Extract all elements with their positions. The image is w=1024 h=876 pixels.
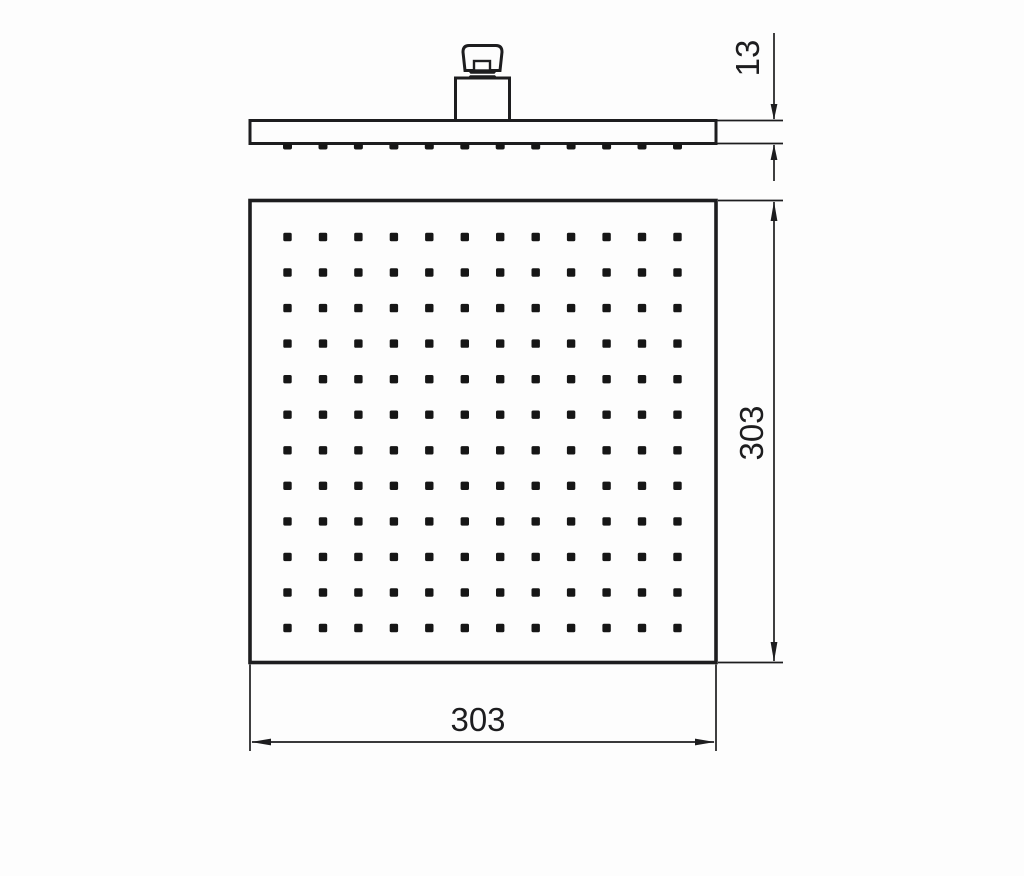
nozzle-dot xyxy=(319,233,327,241)
nozzle-dot xyxy=(461,624,469,632)
nozzle-dot xyxy=(390,411,398,419)
nozzle-dot xyxy=(283,268,291,276)
nozzle-dot xyxy=(354,446,362,454)
nozzle-dot xyxy=(602,517,610,525)
nozzle-dot xyxy=(532,375,540,383)
nozzle-dot xyxy=(354,411,362,419)
nozzle-dot xyxy=(567,588,575,596)
nozzle-dot xyxy=(354,304,362,312)
nozzle-dot xyxy=(532,482,540,490)
nozzle-dot xyxy=(319,446,327,454)
nozzle-dot xyxy=(461,339,469,347)
nozzle-dot xyxy=(496,375,504,383)
nozzle-dot xyxy=(390,624,398,632)
nozzle-dot xyxy=(425,339,433,347)
nozzle-dot xyxy=(638,233,646,241)
nozzle-dot xyxy=(532,268,540,276)
dimension-thickness: 13 xyxy=(717,33,783,181)
nozzle-dot xyxy=(532,553,540,561)
nozzle-dot xyxy=(354,482,362,490)
dimension-label-height: 303 xyxy=(733,405,770,460)
nozzle-dot xyxy=(602,375,610,383)
nozzle-dot xyxy=(390,482,398,490)
nozzle-dot xyxy=(283,517,291,525)
nozzle-dot xyxy=(283,446,291,454)
nozzle-dot xyxy=(354,233,362,241)
nozzle-dot xyxy=(496,446,504,454)
nozzle-dot xyxy=(425,482,433,490)
nozzle-dot xyxy=(496,233,504,241)
nozzle-dot xyxy=(390,304,398,312)
arrowhead-right-icon xyxy=(695,739,715,746)
nozzle-dot xyxy=(602,446,610,454)
nozzle-dot xyxy=(638,411,646,419)
nozzle-dot xyxy=(673,482,681,490)
technical-drawing-svg: 13 303 303 xyxy=(0,0,1024,876)
nozzle-dot xyxy=(567,482,575,490)
nozzle-dot xyxy=(602,411,610,419)
nozzle-dot xyxy=(638,553,646,561)
nozzle-dot xyxy=(673,268,681,276)
nozzle-dot xyxy=(283,482,291,490)
nozzle-dot xyxy=(354,624,362,632)
nozzle-dot xyxy=(638,375,646,383)
arrowhead-up-icon xyxy=(771,201,778,221)
nozzle-dot xyxy=(567,233,575,241)
nozzle-dot xyxy=(354,268,362,276)
dimension-label-thickness: 13 xyxy=(729,40,766,77)
arrowhead-down-icon xyxy=(771,642,778,662)
nozzle-dot xyxy=(673,375,681,383)
nozzle-dot xyxy=(319,304,327,312)
nozzle-dot xyxy=(638,304,646,312)
nozzle-dot xyxy=(354,553,362,561)
connector-body xyxy=(456,78,510,122)
dimension-width: 303 xyxy=(250,665,716,752)
nozzle-dot xyxy=(673,553,681,561)
nozzle-dot xyxy=(461,482,469,490)
nozzle-dot xyxy=(390,268,398,276)
nozzle-dot xyxy=(425,304,433,312)
nozzle-dot xyxy=(638,517,646,525)
nozzle-dot xyxy=(602,553,610,561)
nozzle-dot xyxy=(532,411,540,419)
nozzle-dot xyxy=(461,411,469,419)
nozzle-dot xyxy=(283,588,291,596)
connector-notch xyxy=(474,61,490,71)
nozzle-dot xyxy=(673,339,681,347)
nozzle-bump xyxy=(354,144,363,150)
nozzle-dot xyxy=(319,588,327,596)
nozzle-dot xyxy=(567,517,575,525)
nozzle-dot xyxy=(461,304,469,312)
nozzle-dot xyxy=(532,446,540,454)
nozzle-dot xyxy=(496,304,504,312)
nozzle-bump xyxy=(389,144,398,150)
nozzle-dot xyxy=(532,588,540,596)
nozzle-dot xyxy=(496,517,504,525)
nozzle-dot xyxy=(638,588,646,596)
nozzle-dot xyxy=(532,517,540,525)
nozzle-dot xyxy=(602,482,610,490)
nozzle-dot xyxy=(390,588,398,596)
nozzle-dot xyxy=(673,233,681,241)
nozzle-dot xyxy=(673,517,681,525)
nozzle-dot xyxy=(602,268,610,276)
nozzle-bump xyxy=(319,144,328,150)
nozzle-dot xyxy=(602,304,610,312)
nozzle-dot xyxy=(461,553,469,561)
nozzle-dot xyxy=(532,233,540,241)
nozzle-dot xyxy=(567,411,575,419)
nozzle-dot xyxy=(638,446,646,454)
dimension-height: 303 xyxy=(718,201,783,663)
nozzle-dot xyxy=(673,446,681,454)
nozzle-dot xyxy=(673,304,681,312)
nozzle-dot xyxy=(319,268,327,276)
nozzle-dot xyxy=(638,339,646,347)
arrowhead-left-icon xyxy=(251,739,271,746)
nozzle-bump xyxy=(673,144,682,150)
drawing-canvas: 13 303 303 xyxy=(0,0,1024,876)
nozzle-dot xyxy=(425,375,433,383)
nozzle-dot xyxy=(567,553,575,561)
nozzle-dot xyxy=(602,624,610,632)
nozzle-dot xyxy=(283,339,291,347)
nozzle-bump xyxy=(531,144,540,150)
nozzle-dot xyxy=(567,339,575,347)
nozzle-dot xyxy=(602,339,610,347)
nozzle-dot xyxy=(354,517,362,525)
plate-profile xyxy=(250,121,716,144)
nozzle-dot xyxy=(283,233,291,241)
nozzle-dot xyxy=(461,268,469,276)
nozzle-dot xyxy=(425,411,433,419)
nozzle-dot xyxy=(461,588,469,596)
nozzle-dot xyxy=(461,517,469,525)
nozzle-dot xyxy=(567,268,575,276)
nozzle-dot xyxy=(496,553,504,561)
nozzle-bump xyxy=(602,144,611,150)
nozzle-dot xyxy=(638,624,646,632)
nozzle-dot xyxy=(390,517,398,525)
nozzle-dot xyxy=(390,233,398,241)
nozzle-dot xyxy=(496,339,504,347)
nozzle-dot xyxy=(425,624,433,632)
nozzle-bump xyxy=(283,144,292,150)
nozzle-dot xyxy=(425,588,433,596)
side-view xyxy=(250,46,716,150)
nozzle-dot xyxy=(319,411,327,419)
arrowhead-down-icon xyxy=(771,104,778,120)
nozzle-dot xyxy=(354,375,362,383)
nozzle-bump xyxy=(567,144,576,150)
nozzle-dot xyxy=(567,304,575,312)
nozzle-dot xyxy=(319,375,327,383)
nozzle-dot xyxy=(461,446,469,454)
nozzle-dot xyxy=(425,268,433,276)
nozzle-dot xyxy=(532,339,540,347)
connector-collar-lower xyxy=(467,75,499,79)
nozzle-dot xyxy=(425,233,433,241)
nozzle-dot xyxy=(602,588,610,596)
nozzle-dot xyxy=(390,339,398,347)
nozzle-dot xyxy=(283,553,291,561)
nozzle-dot xyxy=(283,411,291,419)
nozzle-dot xyxy=(567,446,575,454)
nozzle-dot xyxy=(354,339,362,347)
nozzle-dot xyxy=(390,446,398,454)
nozzle-dot xyxy=(461,233,469,241)
nozzle-dot xyxy=(638,268,646,276)
nozzle-dot xyxy=(319,517,327,525)
dimension-label-width: 303 xyxy=(450,701,505,738)
nozzle-dot xyxy=(283,304,291,312)
nozzle-dot xyxy=(567,624,575,632)
nozzle-dot xyxy=(425,517,433,525)
nozzle-dot xyxy=(425,553,433,561)
nozzle-dot xyxy=(283,624,291,632)
nozzle-bump xyxy=(425,144,434,150)
nozzle-dot xyxy=(319,339,327,347)
nozzle-dot xyxy=(673,411,681,419)
nozzle-dot xyxy=(496,411,504,419)
nozzle-bump xyxy=(638,144,647,150)
nozzle-dot xyxy=(496,268,504,276)
nozzle-dot xyxy=(532,624,540,632)
nozzle-dot xyxy=(461,375,469,383)
nozzle-dot xyxy=(283,375,291,383)
nozzle-dot xyxy=(425,446,433,454)
nozzle-dot xyxy=(673,624,681,632)
nozzle-bump xyxy=(496,144,505,150)
nozzle-dot xyxy=(354,588,362,596)
nozzle-dot xyxy=(567,375,575,383)
inlet-connector xyxy=(456,46,510,123)
nozzle-dot xyxy=(496,624,504,632)
nozzle-dot xyxy=(673,588,681,596)
arrowhead-up-icon xyxy=(771,144,778,160)
nozzle-dot xyxy=(390,375,398,383)
nozzle-dot xyxy=(319,553,327,561)
nozzle-dot xyxy=(532,304,540,312)
nozzle-dot xyxy=(496,588,504,596)
nozzle-dot xyxy=(390,553,398,561)
nozzle-dot xyxy=(496,482,504,490)
nozzle-dot xyxy=(319,624,327,632)
nozzle-dot xyxy=(602,233,610,241)
nozzle-bump xyxy=(460,144,469,150)
nozzle-dot xyxy=(638,482,646,490)
nozzle-dot xyxy=(319,482,327,490)
face-view xyxy=(250,201,716,663)
